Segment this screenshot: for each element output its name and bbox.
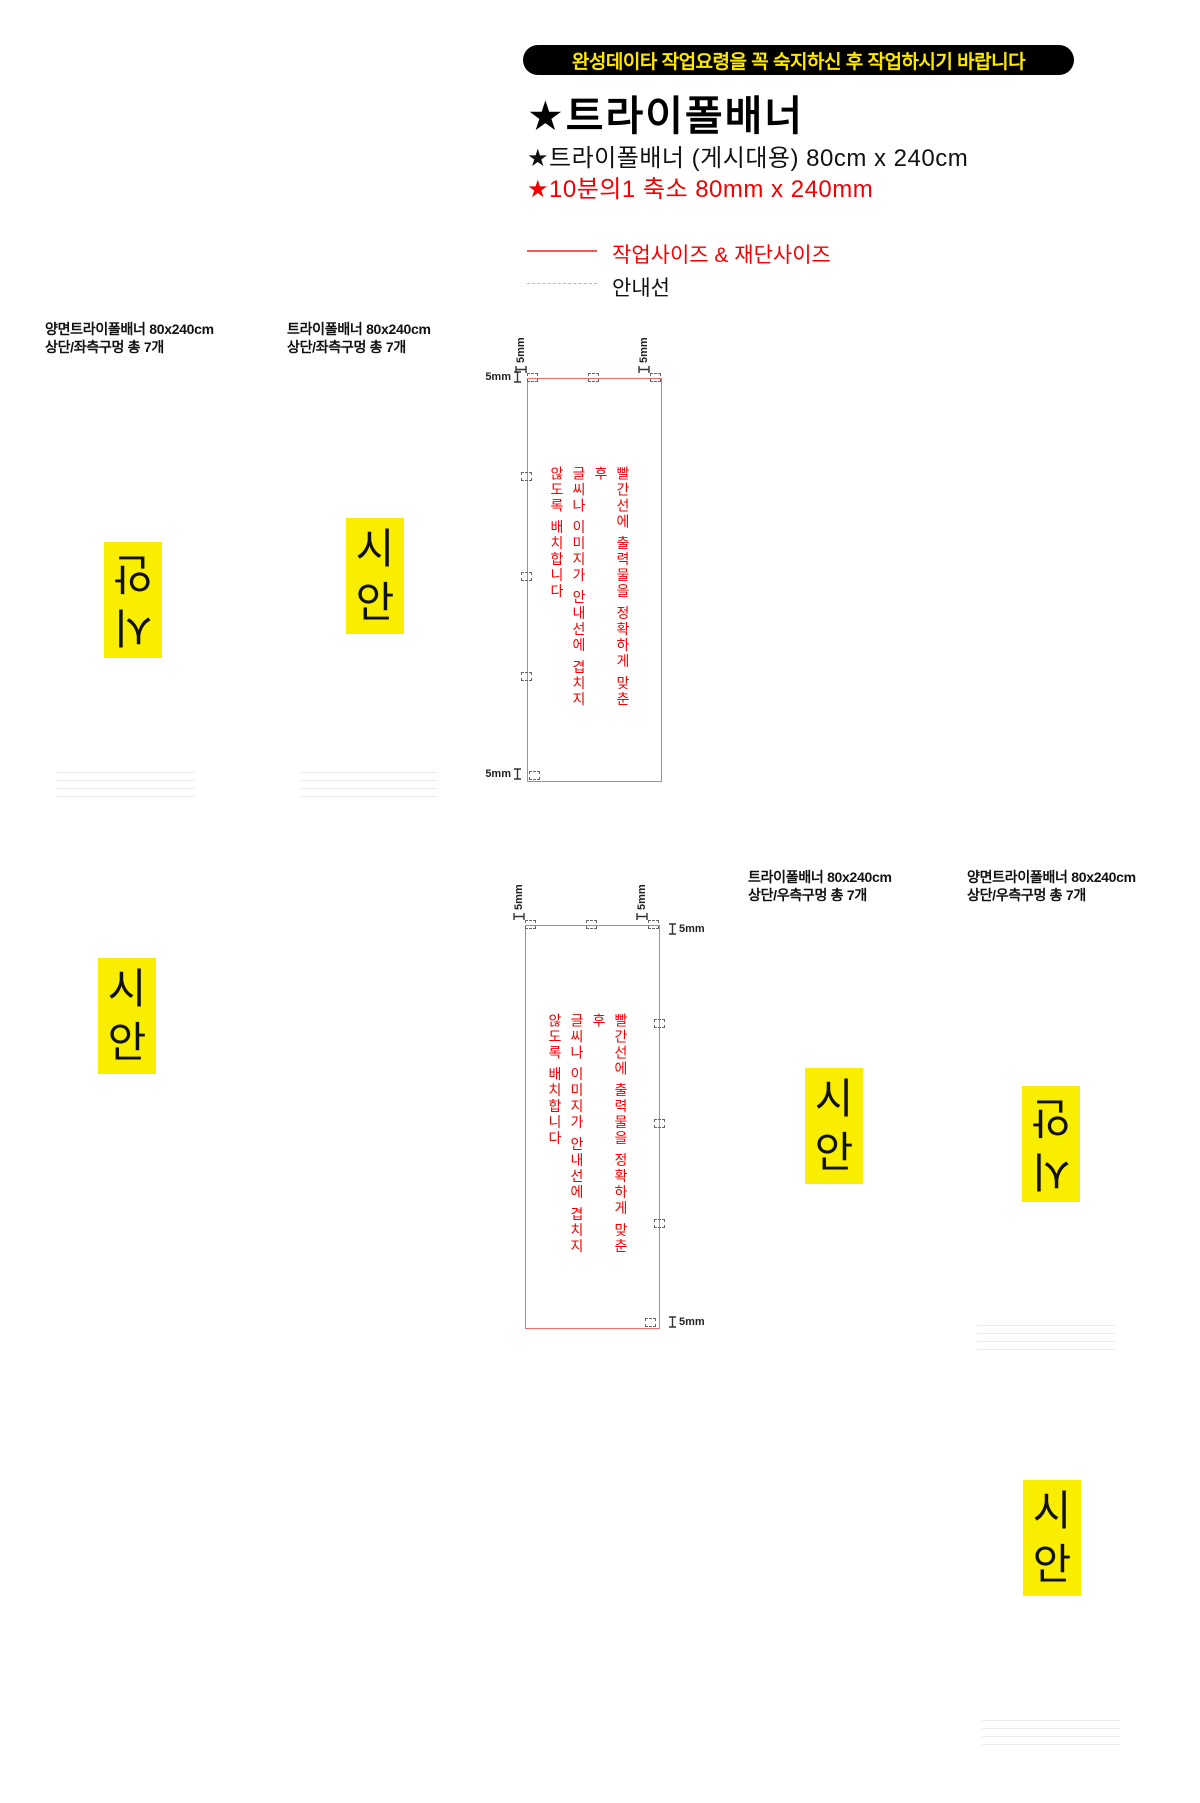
draft-swatch-flipped: 시 안	[104, 542, 162, 658]
hole-mark	[654, 1119, 665, 1128]
spec-label-line: 상단/우측구멍 총 7개	[967, 886, 1136, 904]
spec-label-line: 트라이폴배너 80x240cm	[287, 320, 431, 338]
dim-text: 5mm	[485, 768, 511, 780]
legend-worksize-line	[527, 250, 597, 252]
draft-label: 시 안	[114, 546, 153, 654]
dim-text: 5mm	[485, 371, 511, 383]
hole-mark	[521, 572, 532, 581]
draft-label: 시 안	[108, 962, 147, 1070]
draft-swatch-flipped: 시 안	[1022, 1086, 1080, 1202]
draft-swatch: 시 안	[98, 958, 156, 1074]
ibeam-icon	[513, 912, 525, 921]
spec-label-line: 트라이폴배너 80x240cm	[748, 868, 892, 886]
hole-mark	[521, 672, 532, 681]
ibeam-icon	[513, 371, 522, 383]
draft-swatch: 시 안	[346, 518, 404, 634]
hole-mark	[586, 920, 597, 929]
hole-mark	[645, 1318, 656, 1327]
faint-guide-lines	[57, 772, 195, 799]
vertical-dim-label: 5mm	[636, 883, 648, 921]
draft-label: 시 안	[815, 1072, 854, 1180]
spec-label-right-double: 양면트라이폴배너 80x240cm 상단/우측구멍 총 7개	[967, 868, 1136, 904]
dim-text: 5mm	[515, 337, 527, 363]
dim-label-top-left: 5mm	[472, 371, 522, 383]
spec-label-left-double: 양면트라이폴배너 80x240cm 상단/좌측구멍 총 7개	[45, 320, 214, 356]
ibeam-icon	[636, 912, 648, 921]
hole-mark	[650, 373, 661, 382]
page-subtitle: ★트라이폴배너 (게시대용) 80cm x 240cm	[527, 138, 968, 173]
ibeam-icon	[513, 768, 522, 780]
dim-text: 5mm	[679, 923, 705, 935]
faint-guide-lines	[977, 1325, 1115, 1352]
draft-swatch: 시 안	[1023, 1480, 1081, 1596]
dim-text: 5mm	[636, 884, 648, 910]
vertical-dim-label: 5mm	[513, 883, 525, 921]
instruction-text: 빨간선에 출력물을 정확하게 맞춘후 글씨나 이미지가 안내선에 겹치지 않도록…	[546, 466, 634, 718]
ibeam-icon	[638, 365, 650, 374]
ibeam-icon	[668, 1316, 677, 1328]
notice-bar: 완성데이타 작업요령을 꼭 숙지하신 후 작업하시기 바랍니다	[523, 45, 1074, 75]
hole-mark	[588, 373, 599, 382]
spec-label-line: 양면트라이폴배너 80x240cm	[45, 320, 214, 338]
hole-mark	[525, 920, 536, 929]
dim-text: 5mm	[679, 1316, 705, 1328]
draft-swatch: 시 안	[805, 1068, 863, 1184]
hole-mark	[654, 1219, 665, 1228]
vertical-dim-label: 5mm	[638, 336, 650, 374]
dim-label-top-right: 5mm	[668, 923, 718, 935]
hole-mark	[529, 771, 540, 780]
legend-guide-line	[527, 283, 597, 284]
spec-label-line: 상단/좌측구멍 총 7개	[45, 338, 214, 356]
spec-label-line: 상단/우측구멍 총 7개	[748, 886, 892, 904]
draft-label: 시 안	[1033, 1484, 1072, 1592]
hole-mark	[527, 373, 538, 382]
legend-worksize-label: 작업사이즈 & 재단사이즈	[612, 239, 831, 269]
dim-label-bottom-right: 5mm	[668, 1316, 718, 1328]
spec-label-right-single: 트라이폴배너 80x240cm 상단/우측구멍 총 7개	[748, 868, 892, 904]
faint-guide-lines	[300, 772, 438, 799]
instruction-text: 빨간선에 출력물을 정확하게 맞춘후 글씨나 이미지가 안내선에 겹치지 않도록…	[544, 1013, 632, 1265]
page-title: ★트라이폴배너	[527, 82, 804, 142]
ibeam-icon	[668, 923, 677, 935]
dim-text: 5mm	[638, 337, 650, 363]
scale-note: ★10분의1 축소 80mm x 240mm	[527, 169, 873, 204]
draft-label: 시 안	[356, 522, 395, 630]
legend-guide-label: 안내선	[612, 272, 670, 302]
page-canvas: 완성데이타 작업요령을 꼭 숙지하신 후 작업하시기 바랍니다 ★트라이폴배너 …	[0, 0, 1200, 1803]
hole-mark	[648, 920, 659, 929]
draft-label: 시 안	[1032, 1090, 1071, 1198]
faint-guide-lines	[982, 1720, 1120, 1747]
hole-mark	[654, 1019, 665, 1028]
dim-label-bottom-left: 5mm	[472, 768, 522, 780]
vertical-dim-label: 5mm	[515, 336, 527, 374]
spec-label-line: 양면트라이폴배너 80x240cm	[967, 868, 1136, 886]
spec-label-line: 상단/좌측구멍 총 7개	[287, 338, 431, 356]
dim-text: 5mm	[513, 884, 525, 910]
spec-label-left-single: 트라이폴배너 80x240cm 상단/좌측구멍 총 7개	[287, 320, 431, 356]
hole-mark	[521, 472, 532, 481]
